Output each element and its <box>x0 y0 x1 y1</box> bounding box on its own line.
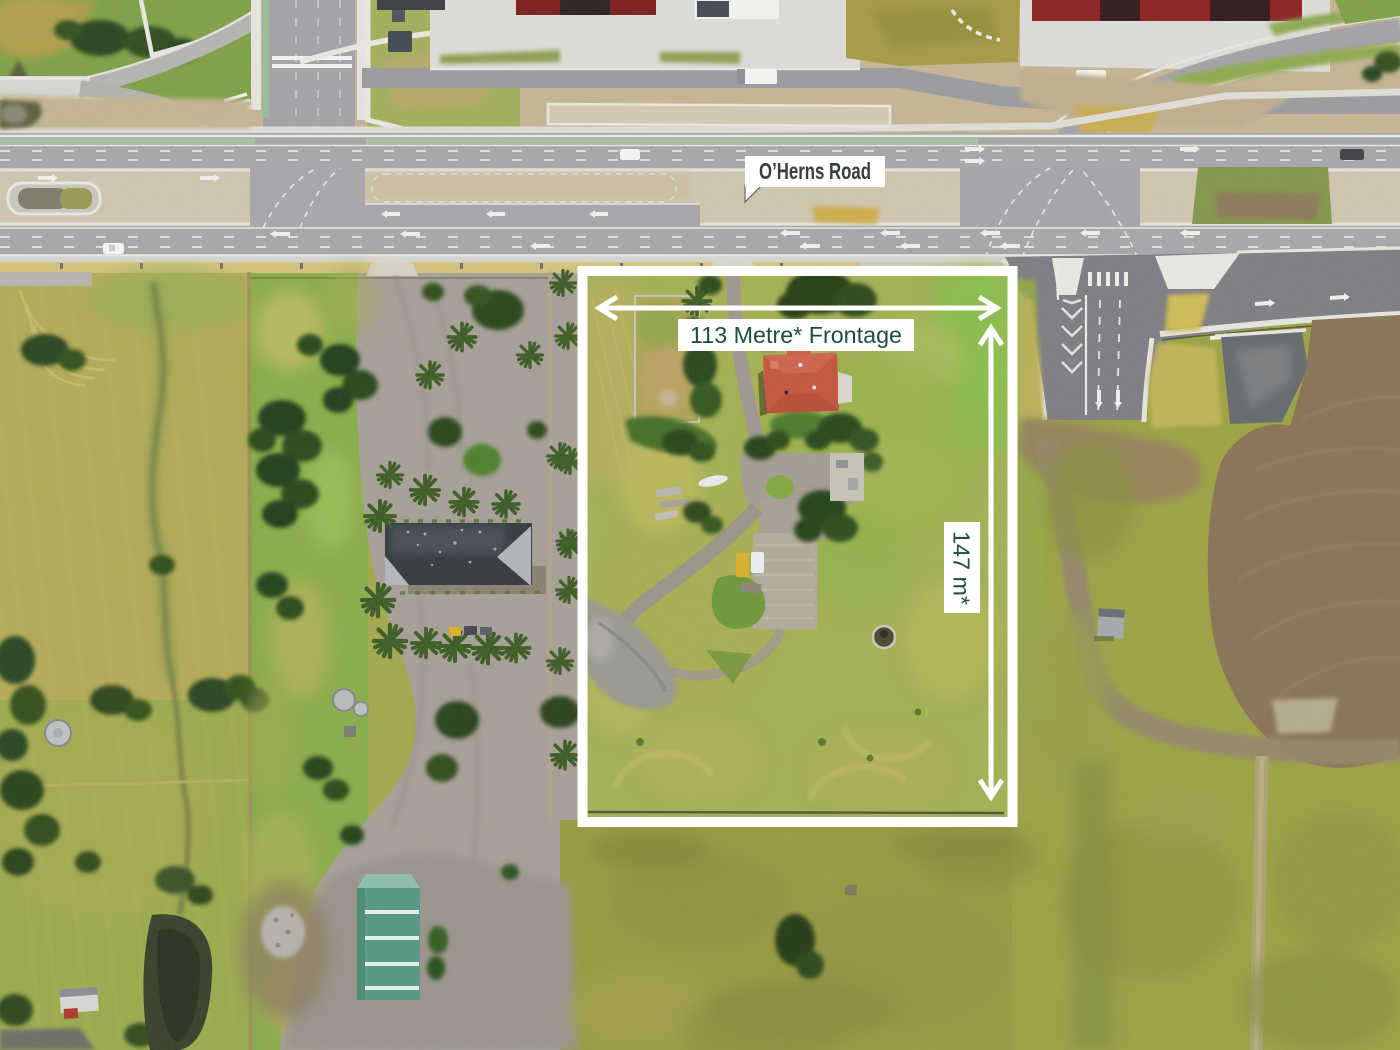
svg-text:O’Herns Road: O’Herns Road <box>759 158 871 184</box>
svg-text:113 Metre* Frontage: 113 Metre* Frontage <box>690 322 902 348</box>
svg-text:147 m*: 147 m* <box>949 531 975 605</box>
